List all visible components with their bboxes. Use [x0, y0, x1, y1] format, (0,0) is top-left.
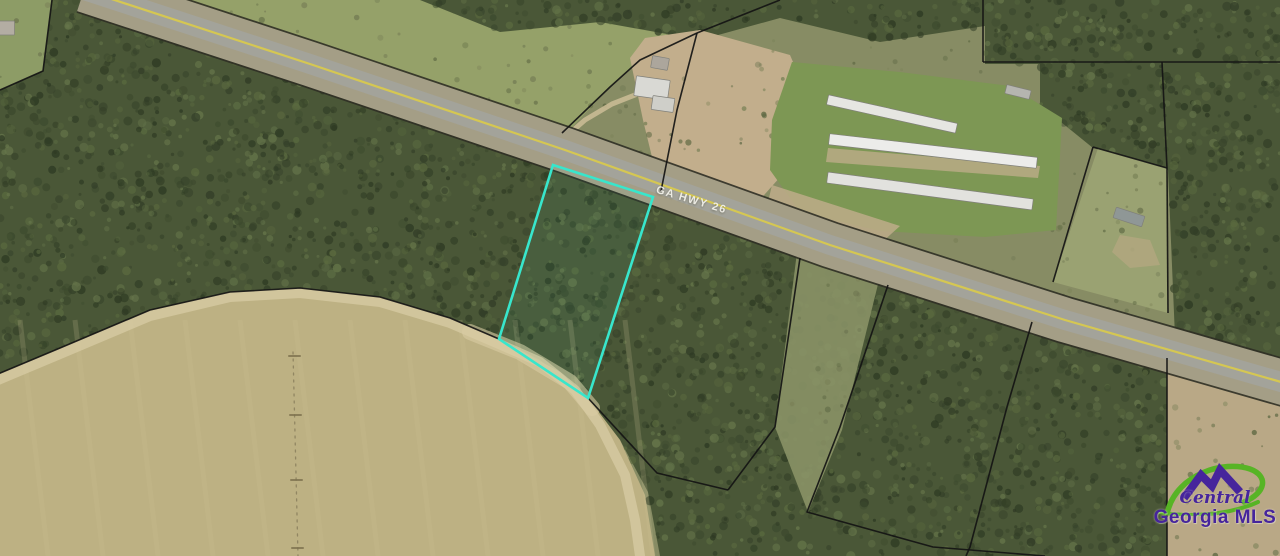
mls-logo-bold-text: Georgia MLS	[1150, 508, 1280, 527]
aerial-map: GA HWY 26 Central Georgia MLS	[0, 0, 1280, 556]
georgia-mls-logo: Central Georgia MLS	[1150, 460, 1280, 527]
aerial-map-canvas	[0, 0, 1280, 556]
